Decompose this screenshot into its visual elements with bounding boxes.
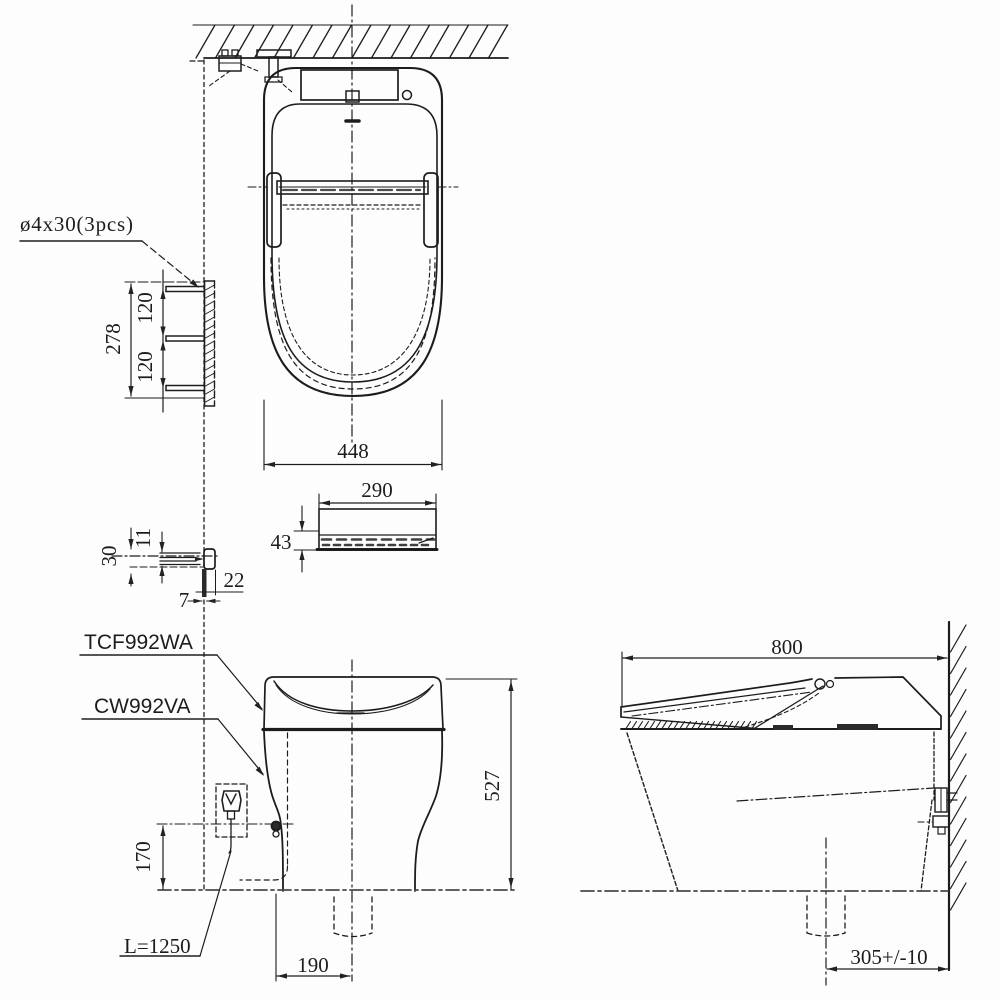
svg-text:22: 22 [224,568,245,592]
svg-text:11: 11 [131,528,155,548]
svg-text:120: 120 [133,351,157,383]
svg-text:43: 43 [271,530,292,554]
svg-text:527: 527 [480,770,504,802]
svg-text:448: 448 [337,439,369,463]
svg-text:TCF992WA: TCF992WA [84,631,193,654]
svg-text:278: 278 [101,323,125,355]
svg-text:120: 120 [133,292,157,324]
svg-text:290: 290 [361,478,393,502]
svg-text:305+/-10: 305+/-10 [850,945,927,969]
svg-text:CW992VA: CW992VA [94,695,190,718]
svg-text:ø4x30(3pcs): ø4x30(3pcs) [20,212,134,236]
svg-text:30: 30 [97,546,121,567]
svg-text:L=1250: L=1250 [124,934,191,958]
svg-text:190: 190 [297,953,329,977]
svg-text:170: 170 [131,841,155,873]
svg-text:7: 7 [179,588,190,612]
svg-text:800: 800 [771,635,803,659]
